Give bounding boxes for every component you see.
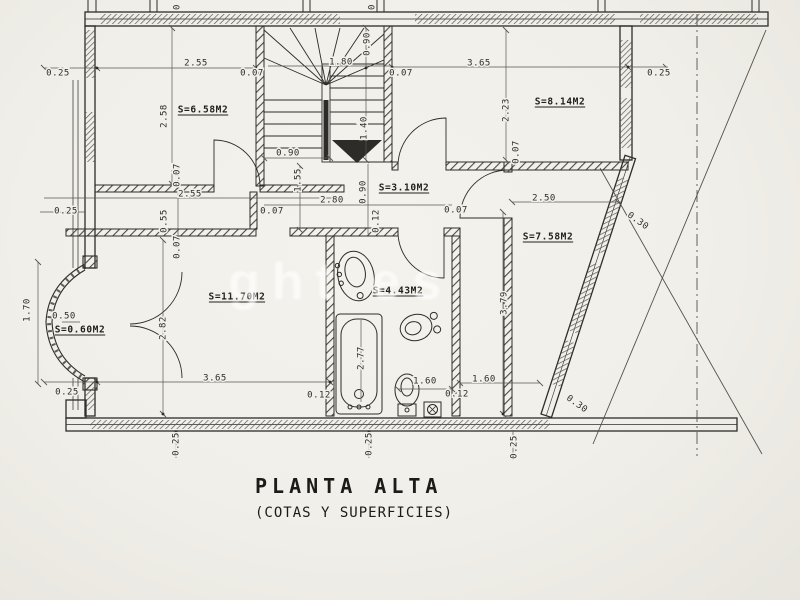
dim-label: 0.07 [512, 140, 522, 164]
dim-label: 2.77 [357, 346, 367, 370]
doors [130, 118, 508, 378]
top-window-band [415, 14, 615, 24]
dim-label: 0.07 [260, 207, 284, 217]
slanted-window [551, 340, 576, 387]
dim-label: 0.50 [52, 312, 76, 322]
dim-label: 2.55 [178, 190, 202, 200]
dim-label: 2.80 [320, 196, 344, 206]
dim-label: 2.50 [532, 194, 556, 204]
top-window-band [100, 14, 340, 24]
staircase [264, 28, 392, 163]
plan-title: PLANTA ALTA [255, 474, 453, 498]
bay-pier [83, 256, 97, 268]
dim-label: 2.82 [159, 316, 169, 340]
room-area-label: S=6.58M2 [178, 105, 229, 116]
dim-label: 0.90 [363, 32, 373, 56]
boundary-lines [593, 14, 766, 456]
dim-label: 0.30 [564, 394, 589, 416]
room-area-label: S=3.10M2 [379, 183, 430, 194]
dim-label: 0.25 [46, 69, 70, 79]
dim-label: 2.55 [184, 59, 208, 69]
bathroom-fixtures [333, 248, 442, 417]
right-window [620, 40, 632, 88]
dim-label: 0.12 [445, 390, 469, 400]
right-window [620, 98, 632, 148]
dim-label: 0.25 [647, 69, 671, 79]
dim-label: 0.07 [173, 235, 183, 259]
door-arc-bay-lower [130, 326, 182, 378]
left-window [85, 30, 95, 78]
dimension-lines [35, 25, 669, 460]
dim-label: 0.25 [54, 207, 78, 217]
interior-walls [66, 26, 628, 416]
dim-label: 1.60 [413, 377, 437, 387]
door-arc-bay-upper [130, 272, 182, 324]
dim-label: 0.25 [365, 432, 375, 456]
dim-label: 1.60 [472, 375, 496, 385]
title-block: PLANTA ALTA (COTAS Y SUPERFICIES) [255, 474, 453, 521]
door-arc-room-814 [398, 118, 446, 166]
dim-label: 0.90 [359, 180, 369, 204]
dim-label: 1.80 [329, 58, 353, 68]
dim-label: 3.79 [500, 291, 510, 315]
top-window-band [640, 14, 758, 24]
dim-label: 0.12 [372, 209, 382, 233]
shower-drain [424, 402, 441, 417]
dim-label: 0.25 [172, 432, 182, 456]
slanted-window [568, 262, 601, 334]
dim-label: 0.07 [444, 206, 468, 216]
toilet [397, 309, 442, 344]
boundary-diagonal [593, 30, 766, 444]
dim-label: 1.40 [360, 116, 370, 140]
dim-label: 2.23 [502, 98, 512, 122]
floor-plan-scan: 0.252.550.071.800.901.400.073.650.25S=6.… [0, 0, 800, 600]
dim-label: 2.58 [160, 104, 170, 128]
outer-walls [66, 0, 768, 431]
dim-label: 0 [173, 4, 183, 10]
dim-label: 0.25 [55, 388, 79, 398]
room-area-label: S=4.43M2 [373, 286, 424, 297]
door-arc-bathroom [398, 232, 444, 278]
dim-label: 0.25 [510, 435, 520, 459]
dim-label: 0.12 [307, 391, 331, 401]
dim-label: 3.65 [203, 374, 227, 384]
room-area-label: S=7.58M2 [523, 232, 574, 243]
bottom-left-stub [66, 400, 86, 418]
dim-label: 0.07 [240, 69, 264, 79]
left-window [85, 112, 95, 162]
stair-direction-arrow [332, 140, 382, 163]
dim-label: 0 [368, 4, 378, 10]
boundary-diagonal [600, 168, 762, 454]
room-area-label: S=11.70M2 [209, 292, 266, 303]
dim-label: 0.90 [276, 149, 300, 159]
dim-label: 1.55 [294, 168, 304, 192]
bottom-wall-hatch [90, 420, 550, 429]
left-ledge-lines [73, 80, 78, 410]
dim-label: 0.07 [173, 163, 183, 187]
dim-label: 1.70 [23, 298, 33, 322]
plan-subtitle: (COTAS Y SUPERFICIES) [255, 505, 453, 521]
dim-label: 0.30 [625, 211, 650, 233]
room-area-label: S=8.14M2 [535, 97, 586, 108]
party-wall-stubs [88, 0, 759, 12]
bay-window [46, 256, 97, 390]
room-area-label: S=0.60M2 [55, 325, 106, 336]
dim-label: 3.65 [467, 59, 491, 69]
door-arc-room-658 [214, 140, 260, 186]
dim-label: 0.07 [389, 69, 413, 79]
dim-label: 0.55 [160, 209, 170, 233]
